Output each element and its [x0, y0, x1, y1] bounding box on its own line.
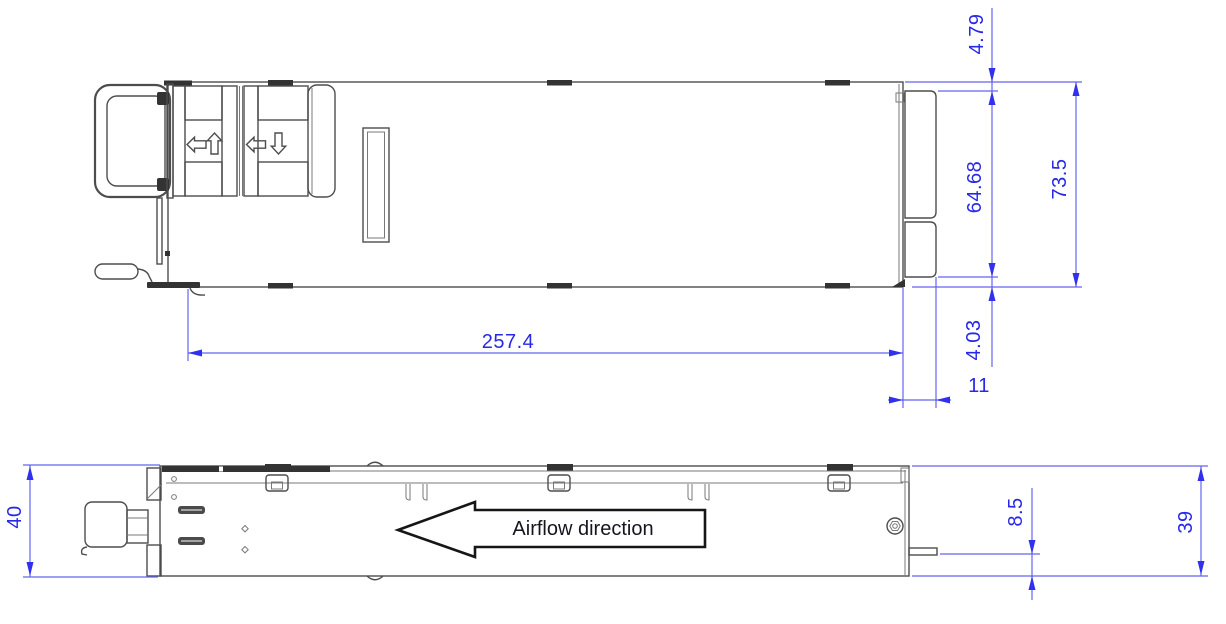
dim-label-rear-offset-bottom: 4.03 — [962, 300, 986, 380]
vent-slots — [178, 506, 205, 545]
front-brackets — [147, 468, 176, 576]
dim-label-rear-offset-top: 4.79 — [965, 0, 989, 74]
dim-label-rear-height: 39 — [1174, 482, 1198, 562]
front-bottom-edge — [147, 282, 200, 288]
dim-label-front-height: 40 — [3, 477, 27, 557]
top-view-dimensions — [188, 8, 1082, 408]
dim-label-connector-depth: 11 — [939, 374, 1019, 398]
release-lever — [95, 198, 205, 295]
hanger-pins — [406, 484, 709, 500]
chassis-clips — [268, 80, 850, 289]
rear-panel — [887, 468, 937, 575]
screw-icon — [887, 518, 903, 534]
front-knob — [82, 502, 148, 555]
airflow-direction-label: Airflow direction — [473, 517, 693, 541]
arrow-down-icon — [271, 133, 285, 154]
dim-label-tab-to-bottom: 8.5 — [1004, 472, 1028, 552]
rail-clips — [265, 464, 853, 491]
latch-assembly — [167, 84, 335, 198]
dim-label-overall-height: 73.5 — [1048, 139, 1072, 219]
drawing-page: 4.79 64.68 73.5 257.4 4.03 11 40 8.5 39 … — [0, 0, 1226, 624]
dim-label-body-length: 257.4 — [468, 330, 548, 354]
top-slot — [363, 128, 389, 242]
dim-label-connector-height: 64.68 — [963, 147, 987, 227]
arrow-left-icon — [187, 137, 206, 152]
arrow-left-icon — [247, 137, 266, 152]
arrow-up-icon — [207, 133, 221, 154]
top-view — [95, 80, 936, 295]
front-top-edge — [164, 81, 192, 86]
handle — [95, 85, 170, 197]
rear-tab — [909, 548, 937, 555]
